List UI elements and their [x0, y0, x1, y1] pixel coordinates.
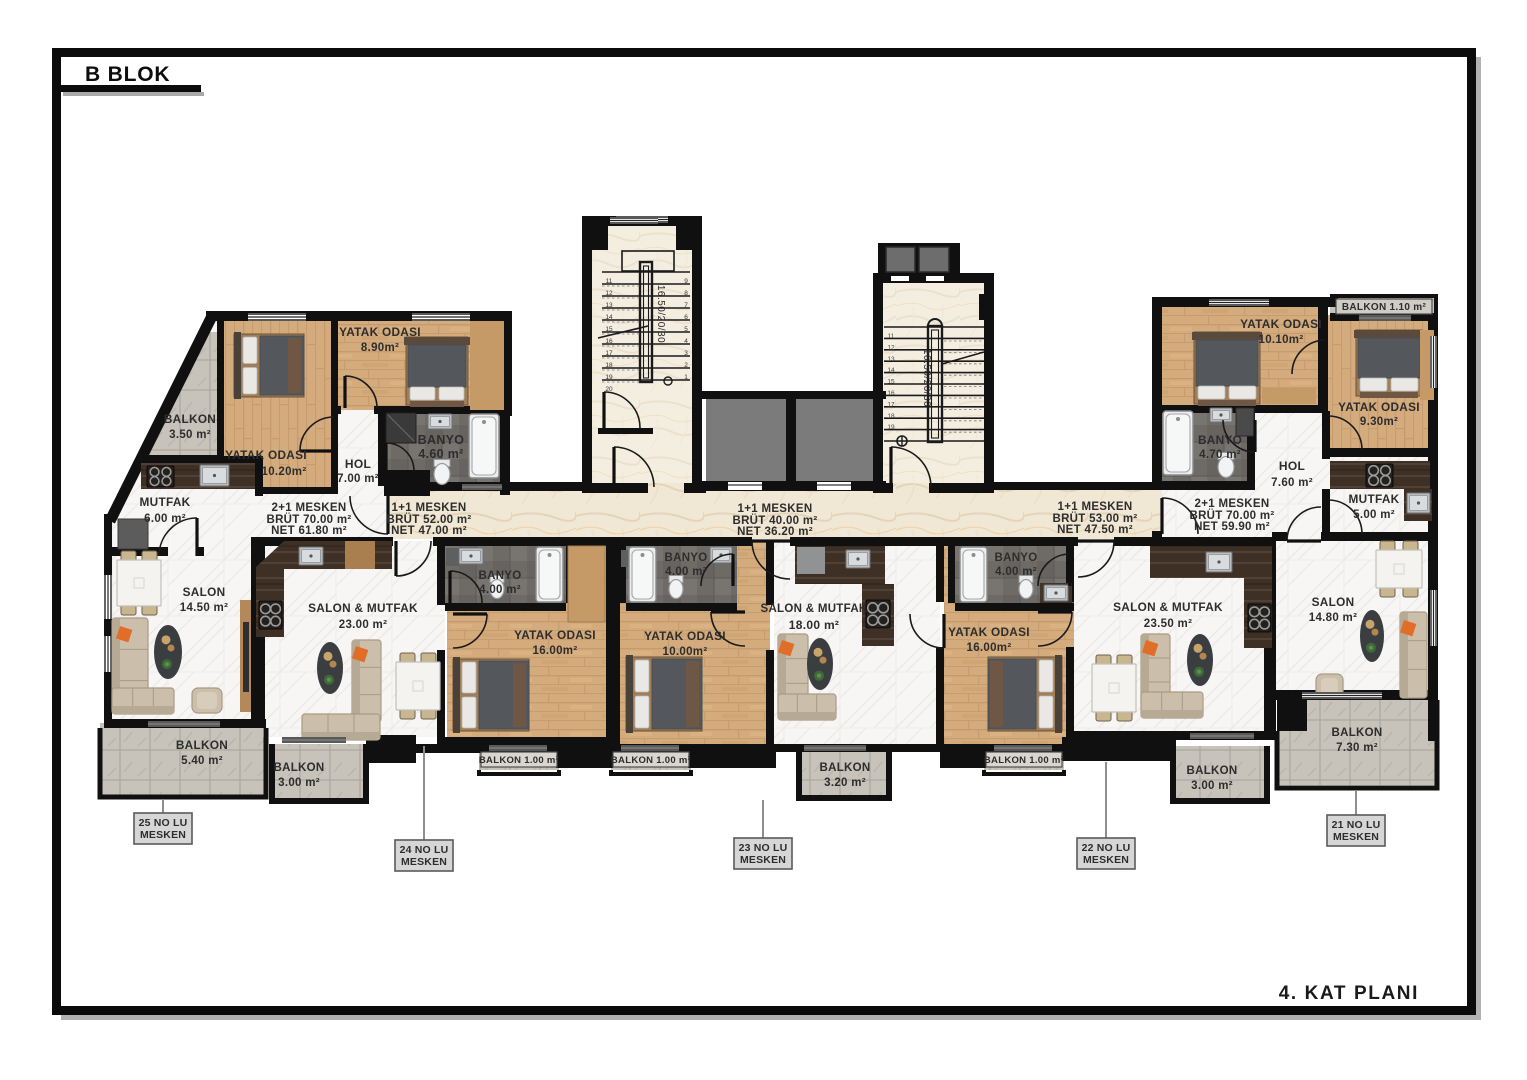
svg-text:B BLOK: B BLOK	[85, 63, 170, 86]
svg-text:BALKON: BALKON	[176, 738, 228, 752]
svg-text:SALON: SALON	[183, 585, 226, 599]
svg-text:15: 15	[887, 379, 895, 386]
svg-text:BANYO: BANYO	[1198, 433, 1242, 447]
svg-text:YATAK ODASI: YATAK ODASI	[948, 625, 1030, 639]
svg-text:16: 16	[605, 338, 613, 345]
svg-text:5: 5	[684, 326, 688, 333]
svg-text:15: 15	[605, 326, 613, 333]
svg-text:YATAK ODASI: YATAK ODASI	[1338, 400, 1420, 414]
svg-text:2: 2	[684, 362, 688, 369]
svg-text:NET 47.00 m²: NET 47.00 m²	[391, 525, 467, 537]
svg-text:YATAK ODASI: YATAK ODASI	[339, 325, 421, 339]
svg-text:7.30 m²: 7.30 m²	[1336, 742, 1378, 754]
svg-text:3.00 m²: 3.00 m²	[1191, 780, 1233, 792]
svg-text:1+1 MESKEN: 1+1 MESKEN	[738, 503, 813, 515]
svg-text:MUTFAK: MUTFAK	[1349, 492, 1400, 506]
svg-text:16: 16	[887, 390, 895, 397]
svg-text:BANYO: BANYO	[664, 552, 707, 564]
svg-text:SALON: SALON	[1312, 595, 1355, 609]
svg-text:16.00m²: 16.00m²	[967, 642, 1012, 654]
svg-text:3.50 m²: 3.50 m²	[169, 429, 211, 441]
svg-text:17: 17	[887, 401, 895, 408]
svg-text:2+1 MESKEN: 2+1 MESKEN	[1195, 498, 1270, 510]
svg-text:1+1 MESKEN: 1+1 MESKEN	[1058, 501, 1133, 513]
svg-text:16.50/20/30: 16.50/20/30	[921, 349, 932, 407]
svg-text:BALKON: BALKON	[1332, 727, 1383, 739]
svg-text:4. KAT PLANI: 4. KAT PLANI	[1279, 983, 1419, 1004]
svg-text:25 NO LU: 25 NO LU	[139, 817, 188, 829]
svg-text:14.80 m²: 14.80 m²	[1309, 612, 1357, 624]
svg-text:23.00 m²: 23.00 m²	[339, 619, 387, 631]
svg-text:YATAK ODASI: YATAK ODASI	[1240, 317, 1322, 331]
svg-text:HOL: HOL	[1279, 459, 1305, 473]
svg-text:19: 19	[887, 424, 895, 431]
svg-text:11: 11	[888, 333, 895, 340]
svg-text:3: 3	[684, 350, 688, 357]
svg-text:21 NO LU: 21 NO LU	[1332, 819, 1381, 831]
svg-text:SALON & MUTFAK: SALON & MUTFAK	[308, 601, 418, 615]
svg-text:10.10m²: 10.10m²	[1259, 334, 1304, 346]
svg-text:BALKON 1.10 m²: BALKON 1.10 m²	[1342, 302, 1427, 313]
svg-text:BANYO: BANYO	[478, 570, 521, 582]
svg-text:NET 47.50 m²: NET 47.50 m²	[1057, 524, 1133, 536]
svg-text:BALKON: BALKON	[164, 412, 216, 426]
svg-text:5.40 m²: 5.40 m²	[181, 755, 223, 767]
svg-text:NET 61.80 m²: NET 61.80 m²	[271, 525, 347, 537]
svg-text:22 NO LU: 22 NO LU	[1082, 842, 1131, 854]
svg-text:10.00m²: 10.00m²	[663, 646, 708, 658]
svg-text:6.00 m²: 6.00 m²	[144, 513, 186, 525]
svg-text:14: 14	[605, 314, 613, 321]
svg-text:24 NO LU: 24 NO LU	[400, 844, 449, 856]
svg-text:13: 13	[605, 302, 613, 309]
svg-text:MESKEN: MESKEN	[401, 856, 447, 868]
svg-text:9: 9	[684, 278, 688, 285]
svg-text:3.20 m²: 3.20 m²	[824, 777, 866, 789]
svg-text:4.00 m²: 4.00 m²	[665, 566, 707, 578]
svg-text:5.00 m²: 5.00 m²	[1353, 509, 1395, 521]
svg-text:7: 7	[684, 302, 688, 309]
svg-text:1+1 MESKEN: 1+1 MESKEN	[392, 502, 467, 514]
svg-text:3.00 m²: 3.00 m²	[278, 777, 320, 789]
svg-text:YATAK ODASI: YATAK ODASI	[514, 628, 596, 642]
svg-text:18.00 m²: 18.00 m²	[789, 618, 839, 632]
svg-text:13: 13	[887, 356, 895, 363]
svg-text:19: 19	[605, 374, 613, 381]
svg-text:4: 4	[684, 338, 688, 345]
svg-text:4.70 m²: 4.70 m²	[1199, 449, 1241, 461]
svg-text:8: 8	[684, 290, 688, 297]
svg-text:1: 1	[684, 374, 688, 381]
svg-text:MESKEN: MESKEN	[140, 829, 186, 841]
svg-text:23.50 m²: 23.50 m²	[1144, 618, 1192, 630]
svg-text:18: 18	[605, 362, 613, 369]
svg-text:18: 18	[887, 413, 895, 420]
svg-text:23 NO LU: 23 NO LU	[739, 842, 788, 854]
svg-text:BANYO: BANYO	[418, 433, 465, 447]
svg-text:MUTFAK: MUTFAK	[140, 495, 191, 509]
svg-text:4.60 m²: 4.60 m²	[418, 447, 463, 461]
svg-text:4.00 m²: 4.00 m²	[995, 566, 1037, 578]
svg-text:10.20m²: 10.20m²	[262, 466, 307, 478]
svg-text:BANYO: BANYO	[994, 552, 1037, 564]
svg-text:8.90m²: 8.90m²	[361, 342, 399, 354]
svg-text:16.00m²: 16.00m²	[533, 645, 578, 657]
svg-text:11: 11	[606, 278, 613, 285]
svg-text:7.00 m²: 7.00 m²	[337, 473, 379, 485]
svg-text:BALKON 1.00 m²: BALKON 1.00 m²	[611, 755, 691, 766]
svg-text:2+1 MESKEN: 2+1 MESKEN	[272, 502, 347, 514]
svg-text:NET 59.90 m²: NET 59.90 m²	[1194, 521, 1270, 533]
svg-text:16.50/20/30: 16.50/20/30	[655, 285, 666, 343]
svg-text:BALKON: BALKON	[274, 762, 325, 774]
svg-text:6: 6	[684, 314, 688, 321]
svg-text:BALKON 1.00 m²: BALKON 1.00 m²	[479, 755, 559, 766]
svg-text:NET 36.20 m²: NET 36.20 m²	[737, 526, 813, 538]
svg-text:BALKON: BALKON	[820, 762, 871, 774]
svg-text:HOL: HOL	[345, 457, 371, 471]
svg-text:17: 17	[605, 350, 613, 357]
svg-text:SALON & MUTFAK: SALON & MUTFAK	[760, 603, 867, 615]
svg-text:14.50 m²: 14.50 m²	[180, 602, 228, 614]
svg-text:MESKEN: MESKEN	[1083, 854, 1129, 866]
svg-text:SALON & MUTFAK: SALON & MUTFAK	[1113, 600, 1223, 614]
svg-text:9.30m²: 9.30m²	[1360, 416, 1398, 428]
svg-text:YATAK ODASI: YATAK ODASI	[644, 629, 726, 643]
svg-text:12: 12	[605, 290, 613, 297]
svg-text:MESKEN: MESKEN	[1333, 831, 1379, 843]
svg-text:MESKEN: MESKEN	[740, 854, 786, 866]
svg-text:7.60 m²: 7.60 m²	[1271, 477, 1313, 489]
svg-text:14: 14	[887, 367, 895, 374]
svg-text:BALKON 1.00 m²: BALKON 1.00 m²	[984, 755, 1064, 766]
svg-text:BALKON: BALKON	[1187, 765, 1238, 777]
svg-text:12: 12	[887, 344, 895, 351]
svg-text:YATAK ODASI: YATAK ODASI	[225, 448, 307, 462]
svg-text:4.00 m²: 4.00 m²	[479, 584, 521, 596]
